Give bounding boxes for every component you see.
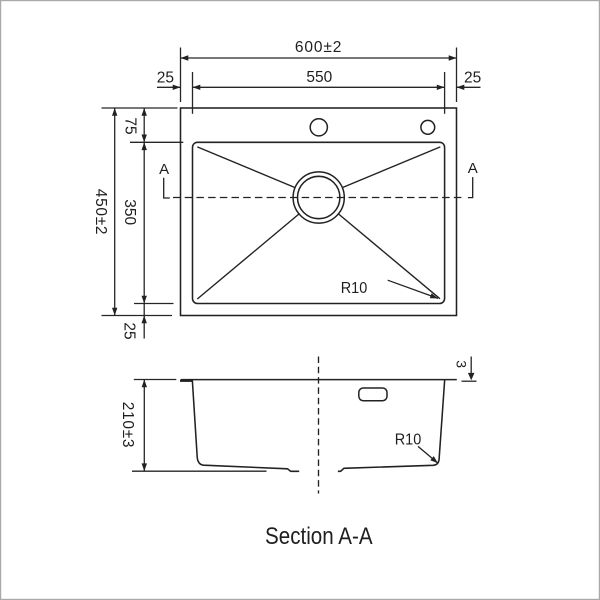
- svg-text:A: A: [468, 160, 478, 177]
- svg-text:210±3: 210±3: [119, 402, 136, 449]
- svg-text:3: 3: [453, 360, 469, 368]
- svg-text:550: 550: [306, 69, 332, 86]
- svg-text:Section A-A: Section A-A: [265, 523, 373, 550]
- svg-text:25: 25: [157, 70, 174, 87]
- svg-text:350: 350: [121, 199, 138, 225]
- svg-text:600±2: 600±2: [295, 39, 343, 56]
- svg-text:25: 25: [464, 70, 481, 87]
- svg-text:450±2: 450±2: [92, 189, 109, 236]
- svg-text:25: 25: [121, 322, 138, 339]
- svg-text:R10: R10: [341, 280, 368, 297]
- svg-text:R10: R10: [395, 432, 422, 449]
- svg-text:75: 75: [121, 117, 138, 134]
- svg-text:A: A: [159, 161, 169, 178]
